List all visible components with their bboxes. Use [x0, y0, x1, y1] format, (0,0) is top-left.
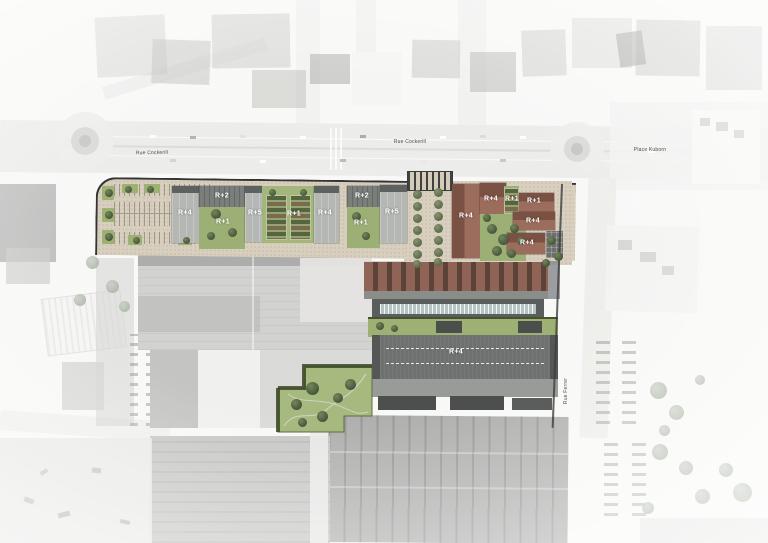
building-label: R+4 — [484, 196, 498, 203]
tree-icon — [125, 186, 132, 193]
tree-icon — [362, 232, 370, 240]
building-label: R+1 — [505, 196, 519, 203]
tree-icon — [300, 189, 307, 196]
tree-icon — [133, 237, 140, 244]
tree-icon — [183, 237, 190, 244]
tree-icon — [434, 258, 442, 266]
site-plan-canvas: R+4 R+2 R+1 R+5 R+1 R+4 R+2 R+1 R+5 R+4 … — [0, 0, 768, 543]
building-label: R+5 — [385, 209, 399, 216]
building-label: R+4 — [520, 240, 534, 247]
tree-icon — [434, 248, 443, 257]
deck-apron — [372, 379, 558, 397]
tree-icon — [510, 224, 519, 233]
tree-icon — [345, 379, 356, 390]
tree-icon — [498, 234, 509, 245]
tree-icon — [147, 186, 154, 193]
tree-icon — [105, 211, 113, 219]
tree-icon — [291, 399, 302, 410]
tree-icon — [105, 233, 113, 241]
tree-icon — [547, 236, 556, 245]
building-label: R+1 — [354, 220, 368, 227]
parking-deck-building — [372, 335, 558, 379]
tree-icon — [413, 214, 422, 223]
tree-icon — [434, 200, 443, 209]
tree-icon — [487, 224, 497, 234]
garden-beds — [291, 196, 310, 239]
tree-icon — [391, 325, 398, 332]
tree-icon — [306, 382, 319, 395]
building-label: R+2 — [355, 193, 369, 200]
tree-icon — [413, 238, 422, 247]
street-label: Rue Cockerill — [136, 150, 168, 157]
tree-icon — [333, 393, 343, 403]
tree-icon — [298, 418, 307, 427]
skylight-band — [380, 304, 536, 314]
pocket-park — [276, 364, 376, 436]
building-label: R+4 — [318, 210, 332, 217]
sawtooth-roof-building — [364, 261, 548, 292]
tree-icon — [211, 209, 221, 219]
tree-icon — [269, 189, 276, 196]
sawtooth-base-strip — [364, 291, 548, 299]
tree-icon — [376, 322, 384, 330]
brick-building — [452, 184, 482, 258]
tree-icon — [554, 252, 563, 261]
tree-icon — [434, 188, 443, 197]
tree-icon — [413, 226, 422, 235]
tree-icon — [413, 202, 422, 211]
building-label: R+5 — [248, 210, 262, 217]
low-annex-building — [512, 398, 552, 410]
street-label: Place Kuborn — [634, 147, 666, 153]
deck-dashed-line — [386, 363, 544, 364]
masterplan-overlay: R+4 R+2 R+1 R+5 R+1 R+4 R+2 R+1 R+5 R+4 … — [0, 0, 768, 543]
building-label: R+2 — [215, 193, 229, 200]
tree-icon — [413, 260, 421, 268]
courtyard-green — [199, 207, 245, 249]
street-label: Rue Ferrer — [563, 378, 569, 404]
tree-icon — [413, 190, 422, 199]
building-label: R+4 — [178, 210, 192, 217]
tree-icon — [228, 228, 237, 237]
tree-icon — [413, 250, 422, 259]
tree-icon — [483, 214, 491, 222]
tree-icon — [507, 249, 516, 258]
tree-icon — [434, 224, 443, 233]
tree-icon — [207, 232, 215, 240]
tree-icon — [317, 411, 328, 422]
street-label: Rue Cockerill — [394, 139, 426, 145]
deck-dashed-line — [386, 348, 544, 349]
building-label: R+1 — [527, 198, 541, 205]
tree-icon — [105, 189, 113, 197]
tree-icon — [434, 236, 443, 245]
building-label: R+4 — [449, 349, 463, 356]
pergola-structure — [407, 171, 453, 191]
plaza-paving — [404, 186, 456, 268]
low-annex-building — [378, 396, 436, 410]
building-label: R+1 — [216, 219, 230, 226]
tree-icon — [492, 246, 502, 256]
building-label: R+1 — [287, 211, 301, 218]
low-annex-building — [450, 396, 504, 410]
entrance-pavilion — [436, 321, 462, 333]
tree-icon — [542, 259, 550, 267]
entrance-pavilion — [518, 321, 542, 333]
tree-icon — [434, 212, 443, 221]
building-label: R+4 — [459, 213, 473, 220]
building-label: R+4 — [526, 218, 540, 225]
garden-beds — [267, 196, 286, 239]
